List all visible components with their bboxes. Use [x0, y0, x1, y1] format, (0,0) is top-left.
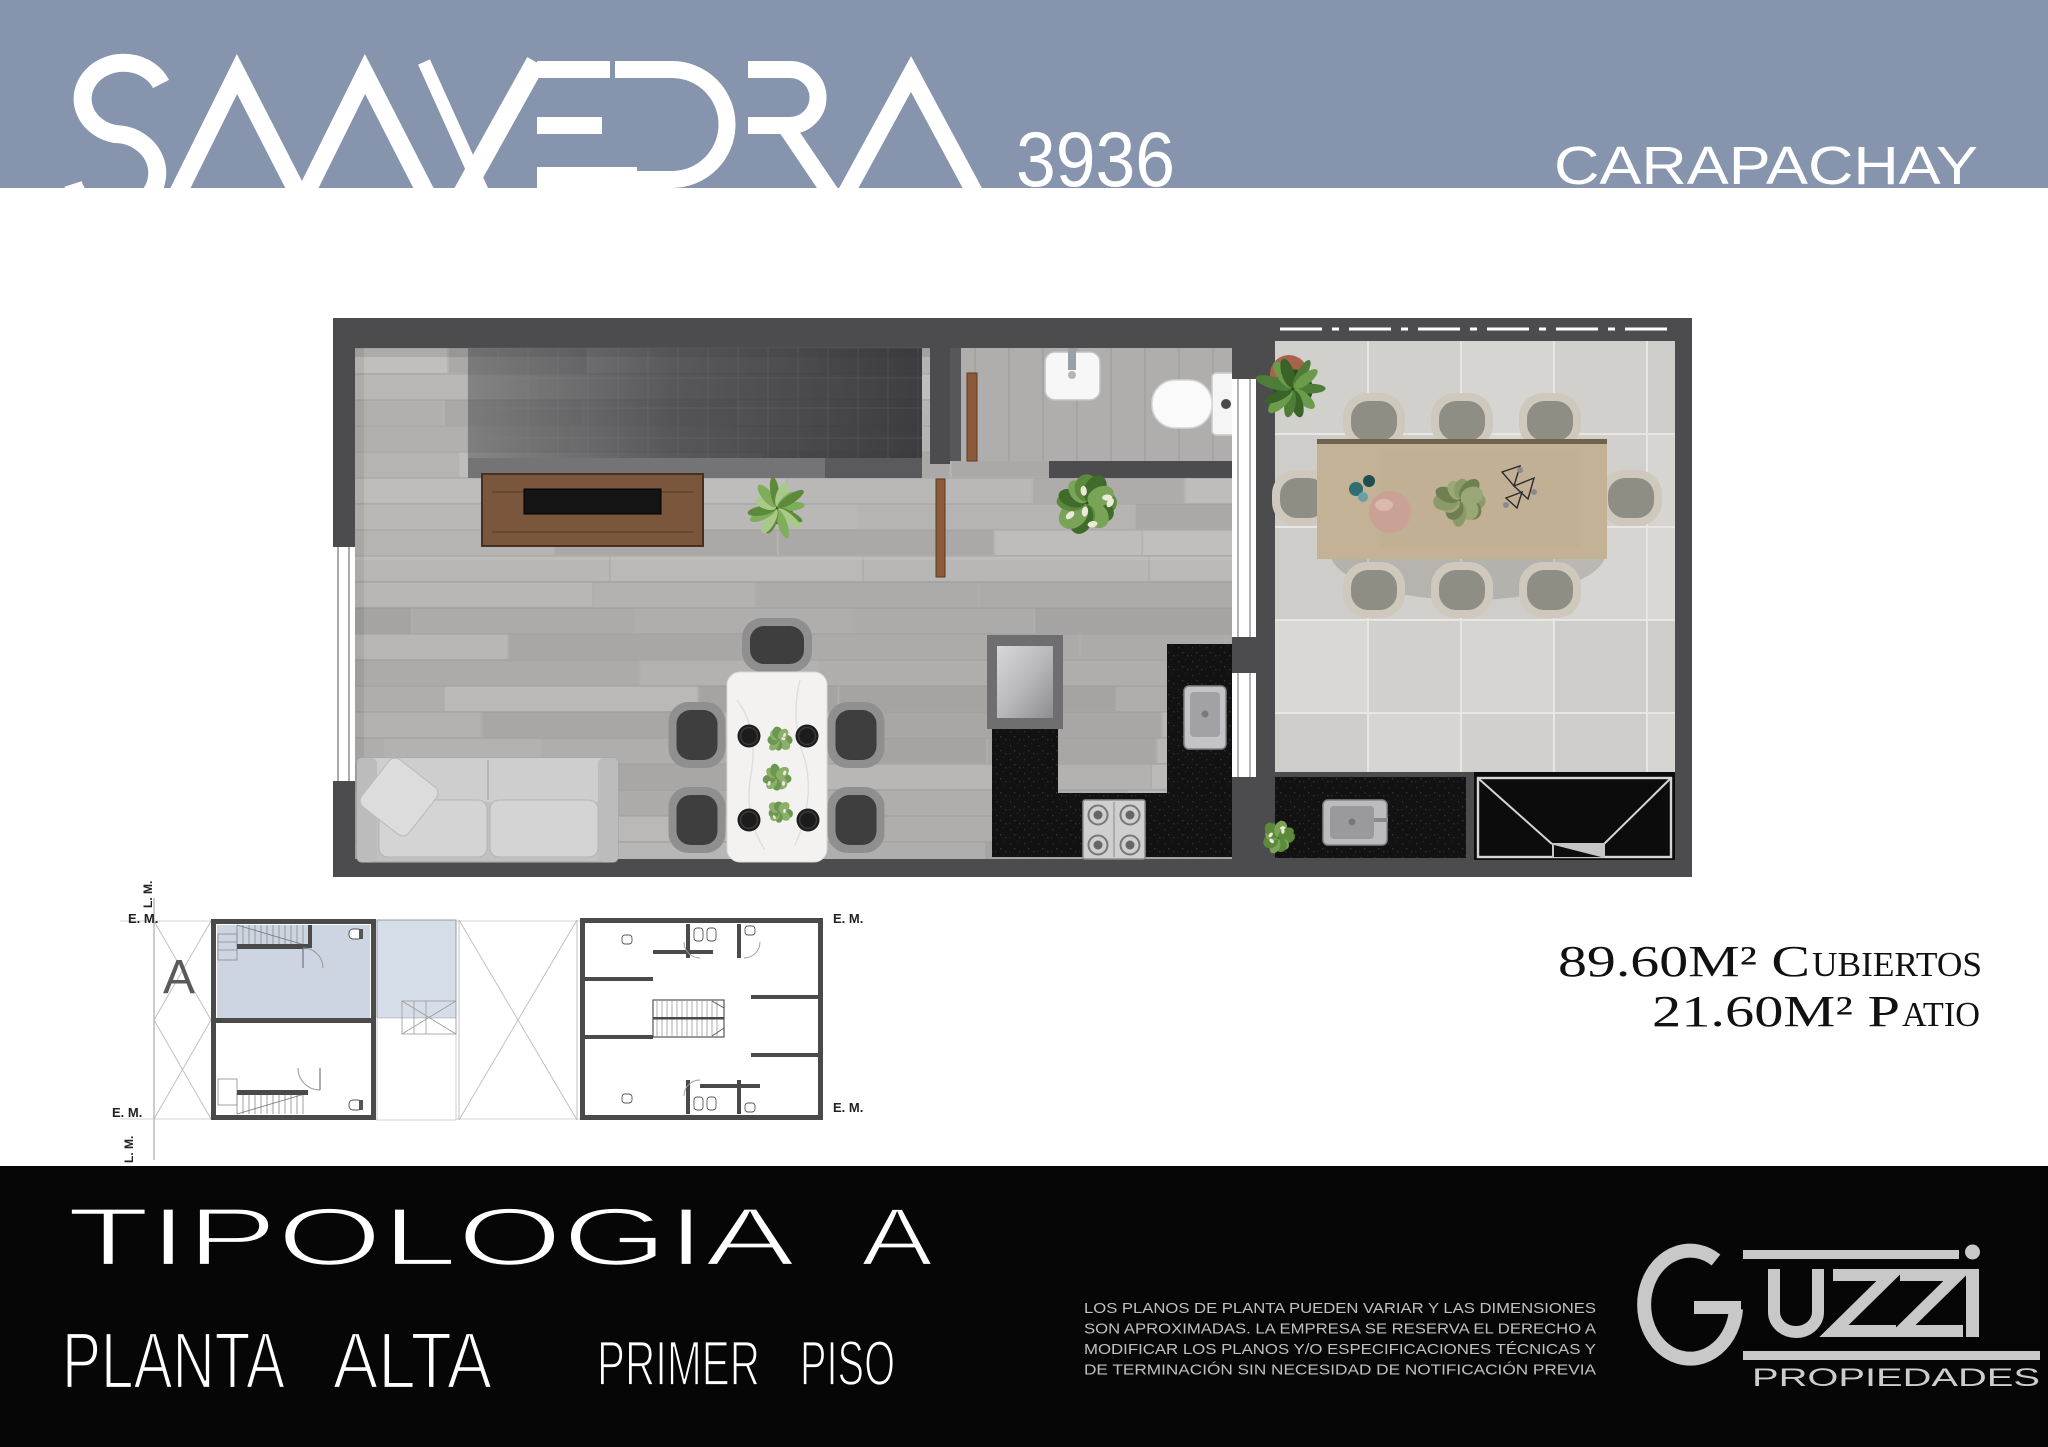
svg-text:L. M.: L. M. — [141, 881, 155, 908]
svg-text:89.60M² C: 89.60M² C — [1558, 937, 1810, 986]
svg-text:ALTA: ALTA — [333, 1316, 493, 1405]
svg-text:21.60M² P: 21.60M² P — [1652, 987, 1900, 1036]
svg-text:E. M.: E. M. — [833, 911, 863, 926]
svg-text:E. M.: E. M. — [112, 1105, 142, 1120]
svg-text:CARAPACHAY: CARAPACHAY — [1554, 136, 1978, 196]
svg-text:UBIERTOS: UBIERTOS — [1812, 945, 1982, 984]
svg-text:ATIO: ATIO — [1902, 995, 1980, 1034]
svg-text:LOS PLANOS DE PLANTA PUEDEN VA: LOS PLANOS DE PLANTA PUEDEN VARIAR Y LAS… — [1084, 1300, 1596, 1317]
svg-text:DE TERMINACIÓN SIN NECESIDAD D: DE TERMINACIÓN SIN NECESIDAD DE NOTIFICA… — [1084, 1362, 1596, 1379]
svg-text:MODIFICAR LOS PLANOS Y/O ESPEC: MODIFICAR LOS PLANOS Y/O ESPECIFICACIONE… — [1084, 1341, 1596, 1358]
svg-text:L. M.: L. M. — [122, 1136, 136, 1163]
svg-text:PLANTA: PLANTA — [62, 1316, 285, 1405]
svg-text:A: A — [861, 1192, 933, 1283]
svg-text:TIPOLOGIA: TIPOLOGIA — [67, 1192, 795, 1283]
svg-text:PROPIEDADES: PROPIEDADES — [1752, 1364, 2040, 1392]
svg-text:A: A — [163, 951, 195, 1004]
svg-text:E. M.: E. M. — [833, 1100, 863, 1115]
svg-text:PRIMER: PRIMER — [597, 1329, 760, 1399]
svg-text:3936: 3936 — [1016, 115, 1175, 203]
svg-text:SON APROXIMADAS. LA EMPRESA SE: SON APROXIMADAS. LA EMPRESA SE RESERVA E… — [1084, 1321, 1596, 1338]
svg-text:PISO: PISO — [800, 1329, 895, 1399]
svg-text:E. M.: E. M. — [128, 911, 158, 926]
